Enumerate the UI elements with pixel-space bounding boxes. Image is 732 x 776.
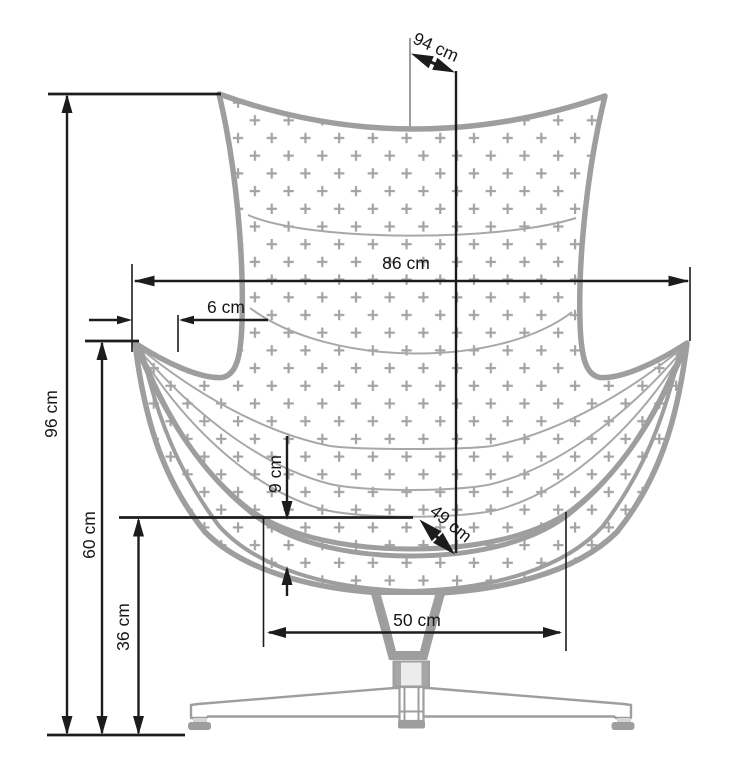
- svg-text:86 cm: 86 cm: [382, 253, 430, 273]
- svg-text:36 cm: 36 cm: [113, 603, 133, 651]
- svg-text:94 cm: 94 cm: [410, 28, 462, 66]
- svg-text:9 cm: 9 cm: [265, 455, 285, 493]
- svg-text:50 cm: 50 cm: [393, 610, 441, 630]
- svg-text:60 cm: 60 cm: [79, 511, 99, 559]
- svg-text:96 cm: 96 cm: [41, 390, 61, 438]
- svg-text:6 cm: 6 cm: [207, 297, 245, 317]
